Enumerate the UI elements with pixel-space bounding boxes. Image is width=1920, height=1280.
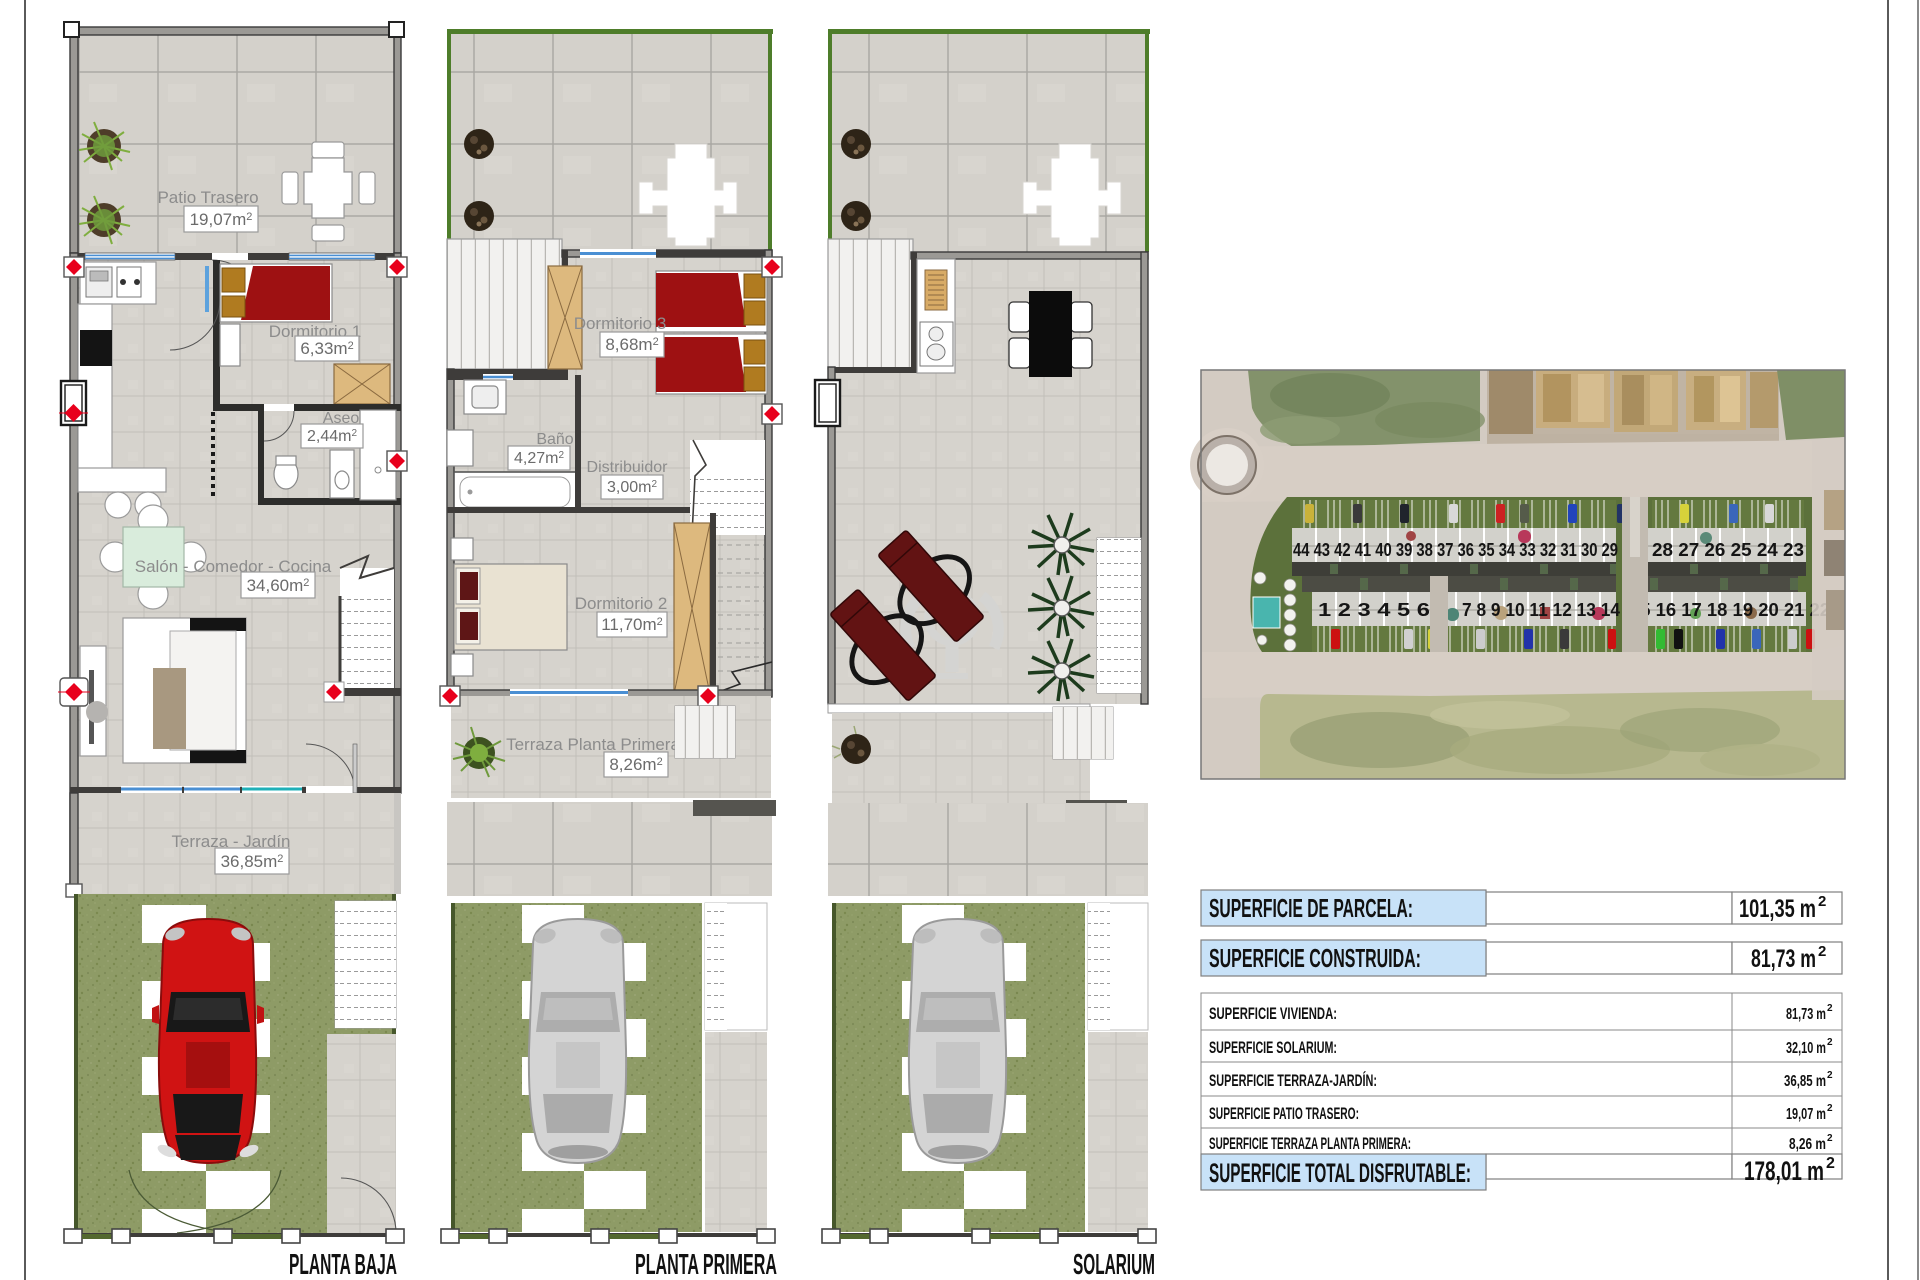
svg-text:SUPERFICIE TERRAZA PLANTA PRIM: SUPERFICIE TERRAZA PLANTA PRIMERA: [1209, 1134, 1411, 1153]
svg-text:SUPERFICIE VIVIENDA:: SUPERFICIE VIVIENDA: [1209, 1004, 1337, 1023]
svg-text:34,60m2: 34,60m2 [247, 576, 310, 595]
svg-text:44 43 42 41 40 39 38 37 36 35: 44 43 42 41 40 39 38 37 36 35 34 33 32 3… [1293, 540, 1618, 560]
svg-text:2: 2 [1827, 1103, 1833, 1114]
svg-text:11,70m2: 11,70m2 [601, 615, 663, 634]
svg-text:2: 2 [1827, 1037, 1833, 1048]
svg-text:8,26 m: 8,26 m [1789, 1136, 1826, 1153]
svg-text:7 8 9 10 11 12 13 14: 7 8 9 10 11 12 13 14 [1462, 600, 1620, 620]
svg-text:8,68m2: 8,68m2 [605, 335, 658, 354]
svg-text:19,07 m: 19,07 m [1786, 1106, 1826, 1123]
svg-text:81,73 m: 81,73 m [1786, 1006, 1826, 1023]
svg-text:3,00m2: 3,00m2 [607, 479, 657, 496]
svg-text:15 16 17 18 19 20 21 22: 15 16 17 18 19 20 21 22 [1630, 600, 1830, 620]
svg-text:2: 2 [1827, 1003, 1833, 1014]
svg-text:4,27m2: 4,27m2 [514, 450, 564, 467]
svg-text:81,73 m: 81,73 m [1751, 945, 1816, 973]
svg-text:SUPERFICIE PATIO TRASERO:: SUPERFICIE PATIO TRASERO: [1209, 1104, 1359, 1123]
svg-text:2: 2 [1818, 893, 1826, 910]
svg-text:Patio Trasero: Patio Trasero [157, 188, 258, 207]
svg-text:2,44m2: 2,44m2 [307, 428, 357, 445]
svg-text:6,33m2: 6,33m2 [300, 339, 353, 358]
svg-text:Distribuidor: Distribuidor [587, 459, 669, 476]
svg-text:2: 2 [1827, 1133, 1833, 1144]
svg-text:Dormitorio 2: Dormitorio 2 [575, 594, 668, 613]
svg-text:SUPERFICIE TERRAZA-JARDÍN:: SUPERFICIE TERRAZA-JARDÍN: [1209, 1071, 1377, 1090]
svg-text:101,35 m: 101,35 m [1739, 895, 1816, 923]
svg-text:19,07m2: 19,07m2 [190, 210, 253, 229]
svg-text:2: 2 [1827, 1070, 1833, 1081]
svg-text:Dormitorio 3: Dormitorio 3 [574, 314, 667, 333]
svg-text:36,85m2: 36,85m2 [221, 852, 284, 871]
svg-text:SUPERFICIE DE PARCELA:: SUPERFICIE DE PARCELA: [1209, 893, 1413, 923]
svg-text:SUPERFICIE TOTAL DISFRUTABLE:: SUPERFICIE TOTAL DISFRUTABLE: [1209, 1158, 1471, 1188]
svg-text:SUPERFICIE SOLARIUM:: SUPERFICIE SOLARIUM: [1209, 1038, 1337, 1057]
svg-text:32,10 m: 32,10 m [1786, 1040, 1826, 1057]
svg-text:PLANTA PRIMERA: PLANTA PRIMERA [635, 1249, 777, 1280]
svg-text:SUPERFICIE CONSTRUIDA:: SUPERFICIE CONSTRUIDA: [1209, 943, 1421, 973]
svg-text:178,01 m: 178,01 m [1744, 1156, 1824, 1186]
svg-text:1 2 3 4 5 6: 1 2 3 4 5 6 [1318, 600, 1430, 620]
svg-text:PLANTA BAJA: PLANTA BAJA [289, 1249, 397, 1280]
svg-text:SOLARIUM: SOLARIUM [1073, 1249, 1155, 1280]
svg-text:28 27 26 25 24 23: 28 27 26 25 24 23 [1652, 540, 1804, 560]
svg-text:36,85 m: 36,85 m [1784, 1073, 1826, 1090]
svg-text:2: 2 [1818, 943, 1826, 960]
svg-text:2: 2 [1826, 1155, 1835, 1172]
svg-text:Terraza Planta Primera: Terraza Planta Primera [506, 735, 680, 754]
svg-text:8,26m2: 8,26m2 [609, 755, 662, 774]
